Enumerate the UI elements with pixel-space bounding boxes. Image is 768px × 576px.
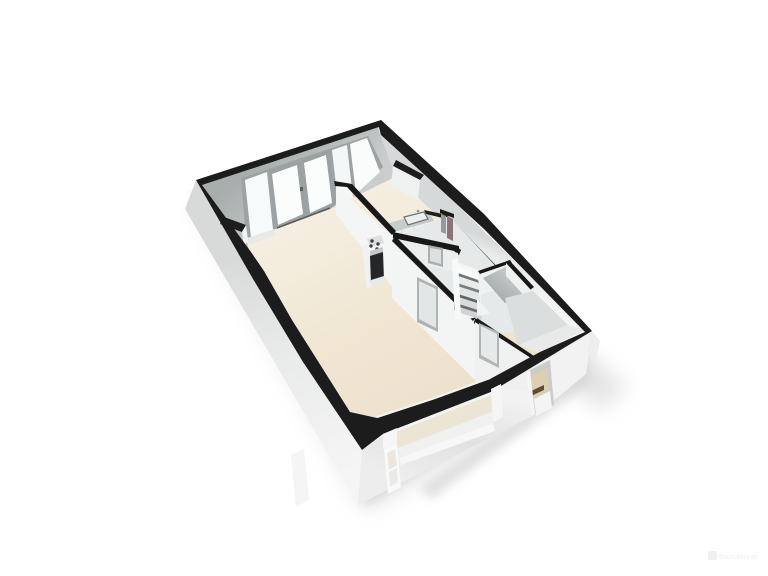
svg-text:floorplanner: floorplanner <box>719 552 759 561</box>
